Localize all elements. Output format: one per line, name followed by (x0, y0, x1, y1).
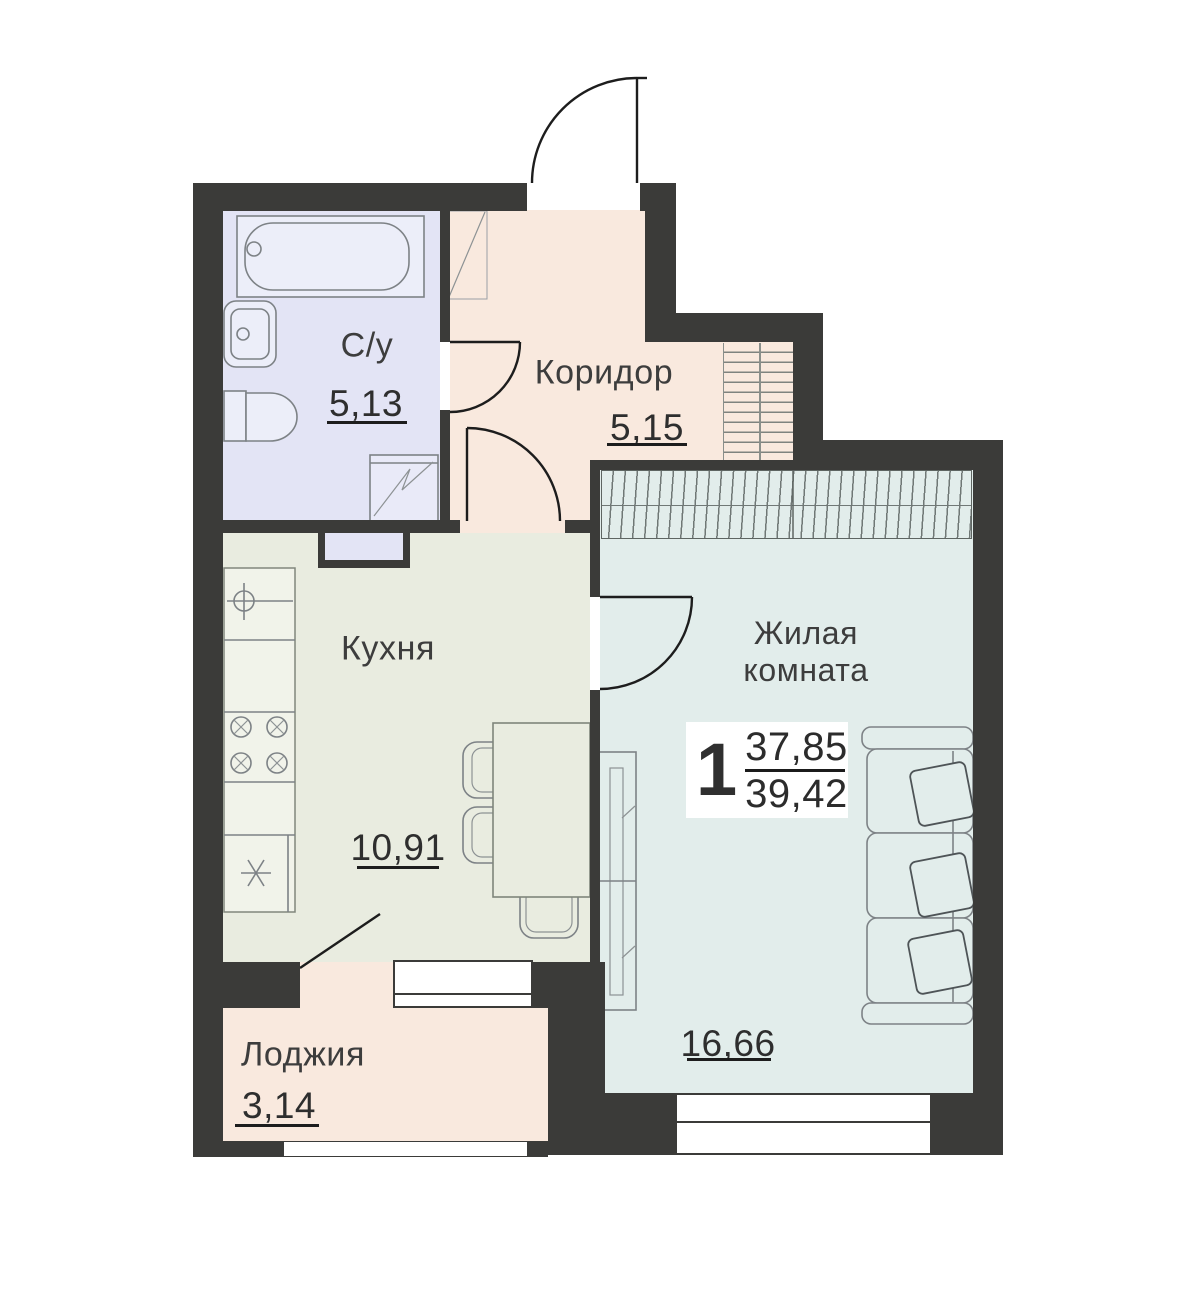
total-area-value: 39,42 (745, 773, 848, 815)
area-underline (327, 421, 407, 424)
kitchen-loggia-window (393, 960, 533, 1008)
washbasin (224, 301, 276, 367)
dining-table (493, 723, 590, 897)
bathroom-door (450, 342, 520, 412)
wall (823, 440, 1003, 470)
room-label-bathroom: С/у (341, 327, 394, 366)
room-area-loggia: 3,14 (242, 1085, 316, 1127)
room-label-living: Жилая комната (743, 615, 868, 689)
kitchen-counter (224, 568, 295, 912)
rooms-count: 1 (696, 737, 737, 804)
wall (193, 183, 223, 1157)
area-underline (357, 866, 439, 869)
corridor-closet (447, 211, 487, 299)
apartment-summary: 1 37,85 39,42 (686, 722, 848, 818)
room-label-loggia: Лоджия (241, 1036, 365, 1075)
wall (640, 183, 676, 211)
wall (676, 313, 823, 342)
living-room-window (675, 1093, 932, 1155)
floor-plan: С/у 5,13 Коридор 5,15 Кухня 10,91 Жилая … (0, 0, 1181, 1299)
wall (548, 1008, 605, 1155)
wall (193, 1141, 283, 1157)
loggia-window (283, 1141, 528, 1157)
room-label-living-line2: комната (743, 652, 868, 689)
wall (223, 962, 300, 1008)
wall (440, 410, 450, 520)
wall (193, 183, 527, 211)
living-room-door (600, 597, 692, 689)
area-underline (687, 1058, 771, 1061)
wall (590, 690, 600, 962)
room-area-kitchen: 10,91 (350, 827, 445, 869)
wall (590, 470, 600, 597)
sofa (862, 727, 975, 1024)
area-underline (235, 1124, 319, 1127)
area-underline (607, 443, 687, 446)
room-label-living-line1: Жилая (743, 615, 868, 652)
window-mullion (394, 993, 532, 995)
duct-box-inner (325, 533, 403, 560)
wall (590, 460, 793, 470)
room-label-corridor: Коридор (535, 354, 673, 393)
bathtub (237, 216, 424, 297)
wall (533, 962, 605, 1008)
living-area-value: 37,85 (745, 726, 848, 768)
balcony-door-leaf (300, 914, 380, 968)
wall (793, 342, 823, 470)
wall (973, 470, 1003, 1155)
washing-machine (370, 455, 438, 521)
wall (440, 210, 450, 342)
wall (645, 211, 676, 342)
window-mullion (676, 1121, 931, 1123)
wall (932, 1093, 1003, 1155)
toilet (224, 391, 297, 441)
wall (223, 520, 460, 533)
wall (600, 1093, 675, 1155)
wall (528, 1141, 548, 1157)
sofa-pillow (907, 761, 975, 995)
entrance-door (532, 78, 647, 183)
room-label-kitchen: Кухня (341, 630, 435, 669)
kitchen-door (467, 428, 560, 521)
room-area-bathroom: 5,13 (329, 383, 403, 425)
